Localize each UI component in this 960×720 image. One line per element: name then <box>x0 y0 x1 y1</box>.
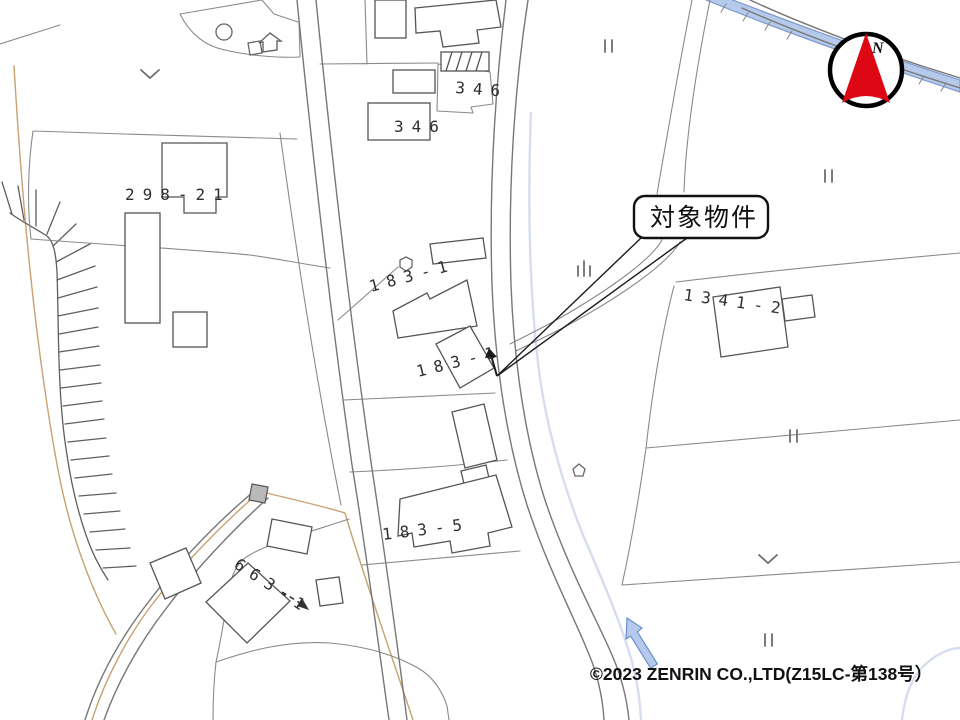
building-outline <box>316 577 343 606</box>
parcel-346-north: 346 <box>455 78 509 101</box>
paddy-marker-icon <box>765 634 772 646</box>
pentagon-marker-icon <box>573 464 585 476</box>
callout-label: 対象物件 <box>650 204 758 232</box>
slope-spine <box>10 213 108 580</box>
zenrin-map-view: 346 346 298-21 183-1 183-1 183-5 663-1 1… <box>0 0 960 720</box>
slope-teeth <box>2 182 136 568</box>
well-symbol-icon <box>216 24 232 40</box>
building-183-5 <box>398 475 512 553</box>
boundary-west-of-road <box>280 133 341 505</box>
tan-boundary-west <box>14 66 116 634</box>
paddy-marker-icon <box>825 170 832 182</box>
paddy-marker-icon <box>790 430 797 442</box>
house-symbol-icon <box>259 33 281 52</box>
east-road-left-edge <box>491 0 604 720</box>
field-marker-icon <box>759 555 777 563</box>
building-outline <box>452 404 497 468</box>
stream-bottom-right <box>902 648 960 720</box>
boundary-field-line-mid <box>622 420 960 585</box>
east-road-right-edge <box>510 0 629 720</box>
building-outline <box>415 0 501 47</box>
copyright-text: ©2023 ZENRIN CO.,LTD(Z15LC-第138号） <box>590 664 932 684</box>
building-filled-gray <box>249 484 268 503</box>
building-outline <box>173 312 207 347</box>
leader-line <box>497 238 641 376</box>
building-outline <box>125 213 160 323</box>
paddy-marker-icon <box>605 40 612 52</box>
parcel-346-south: 346 <box>394 117 447 136</box>
compass-n-label: N <box>871 40 885 57</box>
building-outline <box>267 519 312 554</box>
building-outline <box>393 70 435 93</box>
leader-line <box>497 238 687 376</box>
orchard-marker-icon <box>578 261 590 276</box>
map-canvas: 346 346 298-21 183-1 183-1 183-5 663-1 1… <box>0 0 960 720</box>
building-hatched <box>441 52 489 71</box>
boundary-field-line-low <box>622 562 960 585</box>
water-layer <box>529 0 960 720</box>
building-outline <box>375 0 406 38</box>
boundary-symbol-blob <box>180 0 300 57</box>
parcel-298-21: 298-21 <box>125 185 231 204</box>
stream-line <box>529 112 641 720</box>
boundary-1341-2-parcel <box>646 253 960 448</box>
boundary-top-left-corner <box>0 25 60 44</box>
field-marker-icon <box>141 70 159 78</box>
boundary-path-to-callout <box>657 0 710 194</box>
north-compass: N <box>830 33 902 106</box>
